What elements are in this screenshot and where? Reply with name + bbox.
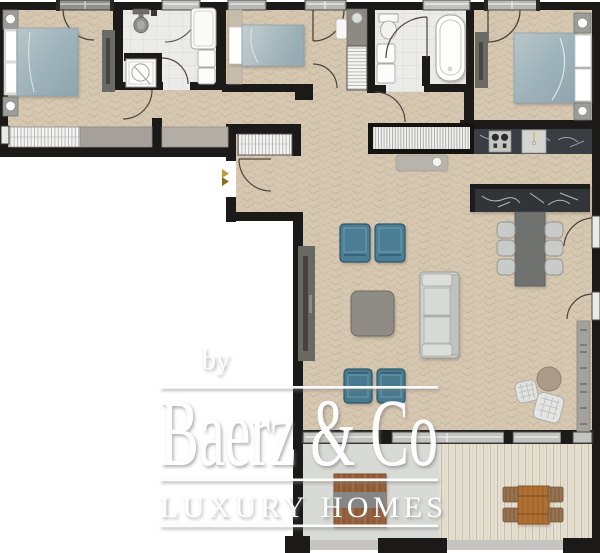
- svg-text:Baerz & Co: Baerz & Co: [160, 379, 438, 486]
- svg-text:by: by: [202, 345, 230, 376]
